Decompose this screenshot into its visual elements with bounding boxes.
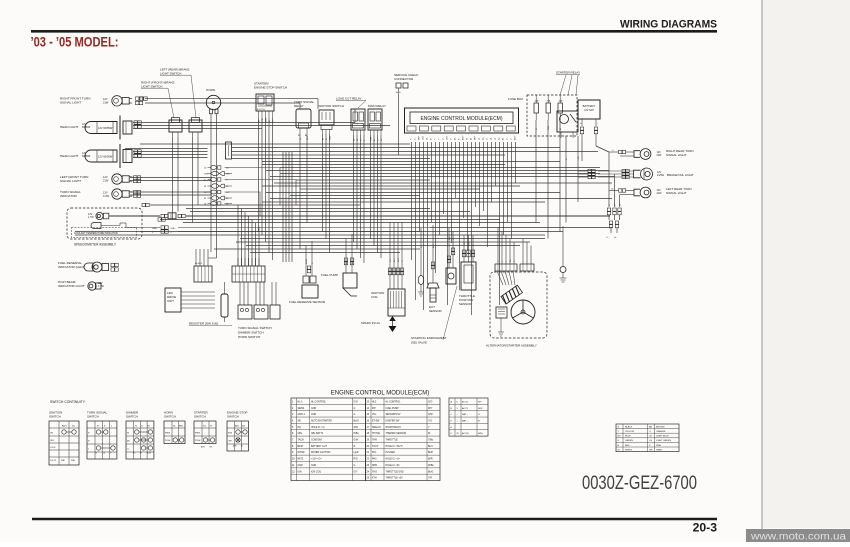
svg-text:ENGINE CONTROL MODULE(ECM): ENGINE CONTROL MODULE(ECM) [420,116,502,122]
svg-text:IGNITER SW: IGNITER SW [386,420,401,422]
svg-text:SIGNAL LIGHT: SIGNAL LIGHT [666,153,687,157]
svg-text:LIGHT BLUE: LIGHT BLUE [656,436,669,438]
svg-text:KTH: KTH [372,478,377,480]
svg-text:PINK: PINK [656,445,662,447]
svg-text:www.moto.com.ua: www.moto.com.ua [750,532,847,543]
svg-text:GRAY: GRAY [656,448,663,451]
svg-text:THR: THR [372,440,377,442]
svg-text:1.7W: 1.7W [88,216,94,219]
svg-text:SWITCH: SWITCH [227,415,239,419]
svg-text:HOLE IC <U>: HOLE IC <U> [386,458,401,461]
svg-text:HOLE IC <OUT>: HOLE IC <OUT> [386,445,404,448]
svg-text:R/Bl: R/Bl [61,460,65,462]
svg-text:12V 60/55W: 12V 60/55W [98,126,113,130]
svg-text:FUEL PUMP: FUEL PUMP [321,273,338,277]
svg-text:LOCK: LOCK [50,447,56,449]
svg-text:Lg/R: Lg/R [354,452,359,454]
svg-text:COLOR: COLOR [50,460,57,462]
svg-text:Bu/Y: Bu/Y [515,135,517,140]
svg-text:G: G [478,414,480,416]
svg-text:Ho: Ho [173,426,175,428]
svg-text:HORN: HORN [206,88,215,92]
svg-text:(N): (N) [127,441,130,443]
svg-text:INDICATOR: INDICATOR [60,194,77,198]
svg-text:P/Bu: P/Bu [354,433,360,435]
svg-text:Gr: Gr [204,203,207,206]
svg-text:21W: 21W [103,100,109,104]
svg-text:Y/R: Y/R [428,478,432,480]
svg-text:G/W: G/W [428,414,433,416]
svg-text:Bu/P: Bu/P [428,452,433,454]
svg-text:G: G [354,408,356,410]
svg-text:W/Y: W/Y [428,408,433,410]
svg-text:G/W: G/W [354,440,359,442]
svg-text:Bu/W: Bu/W [147,453,151,455]
svg-text:ET-SW: ET-SW [372,420,380,422]
svg-text:SIGNAL LIGHT: SIGNAL LIGHT [666,191,687,195]
svg-text:RED: RED [625,445,630,447]
svg-text:W/Bu: W/Bu [428,465,434,467]
svg-text:BLUE: BLUE [625,436,631,438]
svg-text:Gr: Gr [478,137,481,140]
svg-text:BATTERY CUT: BATTERY CUT [311,445,327,448]
svg-text:THROTTLE GND: THROTTLE GND [386,471,404,473]
svg-text:ALTERNATOR/STARTER ASSEMBLY: ALTERNATOR/STARTER ASSEMBLY [486,344,537,348]
svg-text:SENSOR: SENSOR [459,302,473,306]
svg-text:G/Bu: G/Bu [171,228,177,230]
svg-text:15A: 15A [547,100,551,103]
svg-text:20-3: 20-3 [693,521,718,535]
svg-text:BAT3: BAT3 [179,425,183,428]
svg-text:IG3: IG3 [242,426,245,428]
svg-text:CONDOM: CONDOM [311,440,322,442]
svg-text:LIGHT SWITCH: LIGHT SWITCH [141,84,162,88]
svg-text:PUL: PUL [372,452,377,454]
svg-text:COOLANT TEMPERATURE INDICATOR: COOLANT TEMPERATURE INDICATOR [74,232,118,235]
svg-text:SPEEDOMETER ASSEMBLY: SPEEDOMETER ASSEMBLY [74,243,117,247]
svg-text:W/G: W/G [354,427,359,429]
svg-text:BROWN: BROWN [656,426,665,428]
svg-text:BAT −: BAT − [462,413,469,416]
svg-text:Bl/W: Bl/W [265,118,267,122]
svg-text:YELLOW: YELLOW [625,431,635,433]
svg-text:FREE: FREE [195,433,201,435]
svg-text:BKST: BKST [298,446,305,448]
svg-text:MAIN RELAY: MAIN RELAY [368,104,386,108]
svg-text:STARTING ENRICHMENT: STARTING ENRICHMENT [411,336,447,340]
svg-text:RUN: RUN [228,433,233,435]
svg-text:+12V <O>: +12V <O> [311,458,322,461]
svg-text:PUSH: PUSH [165,440,171,442]
svg-text:W: W [381,139,383,141]
svg-text:W/Y: W/Y [475,135,477,140]
svg-text:W/R: W/R [428,459,433,461]
svg-text:G/Bu: G/Bu [152,228,158,230]
svg-text:LIGHT GREEN: LIGHT GREEN [656,440,671,442]
svg-text:TURN SIGNAL SWITCH: TURN SIGNAL SWITCH [238,326,272,330]
svg-text:21W: 21W [657,154,663,157]
svg-text:HEAD LIGHT: HEAD LIGHT [60,154,79,158]
svg-text:W: W [97,426,99,428]
svg-text:W/G: W/G [307,136,309,140]
svg-text:FUSE BOX: FUSE BOX [508,97,523,101]
svg-text:GND: GND [311,465,316,467]
svg-text:BAT1: BAT1 [62,425,67,428]
svg-text:LG: LG [649,440,652,442]
svg-text:R/W: R/W [370,137,372,141]
svg-text:THG: THG [372,471,377,473]
svg-text:INDICATOR (LED): INDICATOR (LED) [58,265,84,269]
svg-text:Y/R: Y/R [262,118,264,122]
svg-text:SENSOR: SENSOR [429,309,443,313]
svg-text:Bu: Bu [133,453,135,455]
svg-text:ENGINE STOP SWITCH: ENGINE STOP SWITCH [254,85,287,89]
svg-text:CONNECTOR: CONNECTOR [394,77,414,81]
svg-text:THERMO SENSOR: THERMO SENSOR [386,433,407,435]
svg-text:60/55W: 60/55W [82,126,91,129]
svg-text:FREE: FREE [165,433,171,435]
svg-text:HL CONTROL: HL CONTROL [311,401,327,403]
svg-text:W: W [140,453,142,455]
svg-text:GND: GND [311,408,316,410]
svg-text:Bl/W: Bl/W [201,447,205,449]
svg-text:VCL: VCL [372,414,377,416]
svg-text:W/Y: W/Y [419,135,421,140]
svg-text:THYDE: THYDE [372,433,380,435]
svg-text:60/55W: 60/55W [82,155,91,158]
svg-text:HOLE IC <R>: HOLE IC <R> [386,464,401,467]
svg-text:R/Bl: R/Bl [329,136,331,140]
svg-text:BATTERY: BATTERY [583,104,596,108]
svg-text:Gr: Gr [494,137,497,140]
svg-text:UNIT: UNIT [167,299,174,303]
svg-text:21/5W: 21/5W [657,174,665,177]
svg-text:O: O [649,431,651,433]
svg-text:AB: AB [298,419,302,422]
svg-text:Bu/Y: Bu/Y [463,135,465,140]
svg-text:SHB: SHB [372,465,377,467]
svg-text:LOAD CUT RELAY: LOAD CUT RELAY [336,97,362,101]
svg-text:THROTTLE: THROTTLE [386,440,399,442]
svg-text:G/O: G/O [354,401,358,403]
svg-text:FUEL RESERVE SENSOR: FUEL RESERVE SENSOR [289,300,326,304]
svg-text:Gr: Gr [466,137,469,140]
svg-text:Y/G: Y/G [428,420,432,422]
svg-text:BR: BR [649,426,652,428]
svg-text:ORANGE: ORANGE [656,430,666,433]
svg-text:SENSORS 5V: SENSORS 5V [386,414,401,416]
svg-text:W: W [357,139,359,141]
svg-text:TOUT: TOUT [372,446,379,448]
svg-text:PULSER: PULSER [386,452,396,454]
svg-text:-: - [597,121,598,125]
svg-text:R/G: R/G [354,459,358,461]
svg-text:HL CONTROL: HL CONTROL [386,401,402,403]
svg-text:Bl/W: Bl/W [233,446,237,448]
svg-text:G: G [354,465,356,467]
svg-text:21W: 21W [103,178,109,182]
svg-text:+: + [580,121,582,125]
svg-text:GREEN: GREEN [625,440,633,442]
svg-text:BAT2: BAT2 [298,458,304,461]
svg-text:ACCU: ACCU [462,400,469,403]
svg-text:10A: 10A [559,100,563,103]
svg-text:SWITCH: SWITCH [126,415,138,419]
svg-text:G/R: G/R [204,174,208,176]
svg-text:DIMMER SWITCH: DIMMER SWITCH [238,331,264,335]
svg-text:START RELAY: START RELAY [386,426,402,429]
svg-text:G/O: G/O [428,401,432,403]
svg-text:HEAD LIGHT: HEAD LIGHT [60,125,79,129]
svg-text:SWITCH: SWITCH [87,415,99,419]
svg-text:BAT2: BAT2 [235,425,239,428]
svg-text:SWITCH: SWITCH [194,415,206,419]
svg-text:G/O: G/O [423,136,425,140]
svg-text:G/O: G/O [447,136,449,140]
svg-text:10A: 10A [535,100,539,103]
svg-text:SWITCH CONTINUITY: SWITCH CONTINUITY [50,400,86,404]
svg-text:ACCV: ACCV [462,407,469,410]
svg-text:G/Y: G/Y [204,192,208,194]
svg-text:SEIN4: SEIN4 [298,408,305,410]
svg-text:PH2: PH2 [372,459,377,461]
svg-text:BU: BU [618,436,621,438]
svg-text:’03 - ’05 MODEL:: ’03 - ’05 MODEL: [31,35,119,50]
svg-text:GR: GR [649,449,653,451]
svg-text:THROTTLE +5V: THROTTLE +5V [386,478,404,480]
svg-text:GND-1: GND-1 [298,414,306,416]
svg-text:WATER CAUTION: WATER CAUTION [311,451,331,454]
svg-text:SWITCH: SWITCH [164,415,176,419]
svg-text:RESISTER 20W 6.8Ω: RESISTER 20W 6.8Ω [189,322,219,326]
svg-text:TACH: TACH [298,439,304,442]
svg-text:Lb: Lb [103,453,105,455]
svg-text:R/Bu: R/Bu [478,433,484,435]
svg-text:Bu/Y: Bu/Y [428,446,433,448]
svg-text:ACCW: ACCW [462,432,470,435]
svg-text:ENGINE CONTROL MODULE(ECM): ENGINE CONTROL MODULE(ECM) [331,391,429,397]
svg-text:SIGNAL LIGHT: SIGNAL LIGHT [60,100,81,104]
svg-text:Gr: Gr [300,137,302,140]
svg-text:CBL BATT1: CBL BATT1 [311,432,324,435]
svg-text:WIRING DIAGRAMS: WIRING DIAGRAMS [620,19,717,31]
svg-text:LIGHT SWITCH: LIGHT SWITCH [160,71,181,75]
svg-text:12V 6AH: 12V 6AH [584,109,594,112]
svg-text:R/W: R/W [548,126,550,130]
svg-text:G/Y: G/Y [226,192,230,194]
svg-text:INJ: INJ [298,427,302,429]
svg-text:SWITCH: SWITCH [49,415,61,419]
svg-text:W: W [226,186,228,188]
svg-text:SRELAY: SRELAY [372,426,381,429]
svg-text:IG1: IG1 [72,426,75,428]
svg-text:AUTO BYSTARTER: AUTO BYSTARTER [311,419,332,422]
svg-text:R/Y: R/Y [478,401,482,403]
svg-text:Y/R: Y/R [578,156,580,160]
svg-text:PUSH: PUSH [195,440,201,442]
svg-text:0030Z-GEZ-6700: 0030Z-GEZ-6700 [582,472,697,494]
svg-text:W: W [204,186,206,188]
svg-text:IG2: IG2 [203,426,206,428]
svg-text:Gr: Gr [490,137,493,140]
svg-text:Y/Bu: Y/Bu [428,440,434,442]
svg-text:BAT +: BAT + [462,419,469,422]
svg-text:IGN COIL: IGN COIL [311,471,322,473]
svg-text:HL2: HL2 [372,401,377,403]
svg-text:SPARK PLUG: SPARK PLUG [361,321,381,325]
svg-text:CBL: CBL [298,433,303,435]
svg-text:(SE) VALVE: (SE) VALVE [411,341,427,345]
svg-text:RELAY: RELAY [294,104,304,108]
svg-text:12V 60/55W: 12V 60/55W [98,154,113,158]
svg-text:R/Bu: R/Bu [71,460,75,462]
svg-text:BRAKE/TAIL LIGHT: BRAKE/TAIL LIGHT [667,173,694,177]
svg-text:SIGNAL LIGHT: SIGNAL LIGHT [60,179,81,183]
svg-text:FIP: FIP [372,408,376,410]
svg-text:STARTER RELAY: STARTER RELAY [556,71,580,75]
svg-text:Gr: Gr [226,203,229,206]
svg-text:COIL: COIL [371,295,378,299]
svg-text:HL-1: HL-1 [298,401,304,403]
svg-text:Bu/G: Bu/G [428,471,433,473]
svg-text:FUEL PUMP: FUEL PUMP [386,408,400,410]
svg-text:L: L [111,426,112,428]
svg-text:WHITE: WHITE [625,449,633,451]
svg-text:Bu W G: Bu W G [195,263,202,265]
svg-text:WTND: WTND [298,452,305,454]
svg-text:HL: HL [148,426,150,428]
svg-text:BLACK: BLACK [625,425,633,428]
svg-text:Bu/G: Bu/G [354,420,359,422]
svg-text:IGNITION SWITCH: IGNITION SWITCH [318,104,344,108]
svg-text:G: G [354,414,356,416]
svg-text:HOLE IC <1>: HOLE IC <1> [311,426,326,429]
svg-text:INDICATOR LIGHT: INDICATOR LIGHT [58,284,85,288]
svg-text:B ST IG: B ST IG [257,109,265,111]
svg-text:G/Y: G/Y [354,471,358,473]
svg-text:HORN SWITCH: HORN SWITCH [238,335,260,339]
svg-text:GND: GND [311,414,316,416]
svg-text:21W: 21W [657,192,663,195]
svg-text:Lo: Lo [141,426,143,428]
svg-text:GND: GND [298,465,303,467]
svg-text:3.4W: 3.4W [103,194,110,198]
svg-text:G: G [618,440,620,442]
svg-text:G/R: G/R [226,174,230,176]
svg-text:IGN: IGN [298,471,302,473]
